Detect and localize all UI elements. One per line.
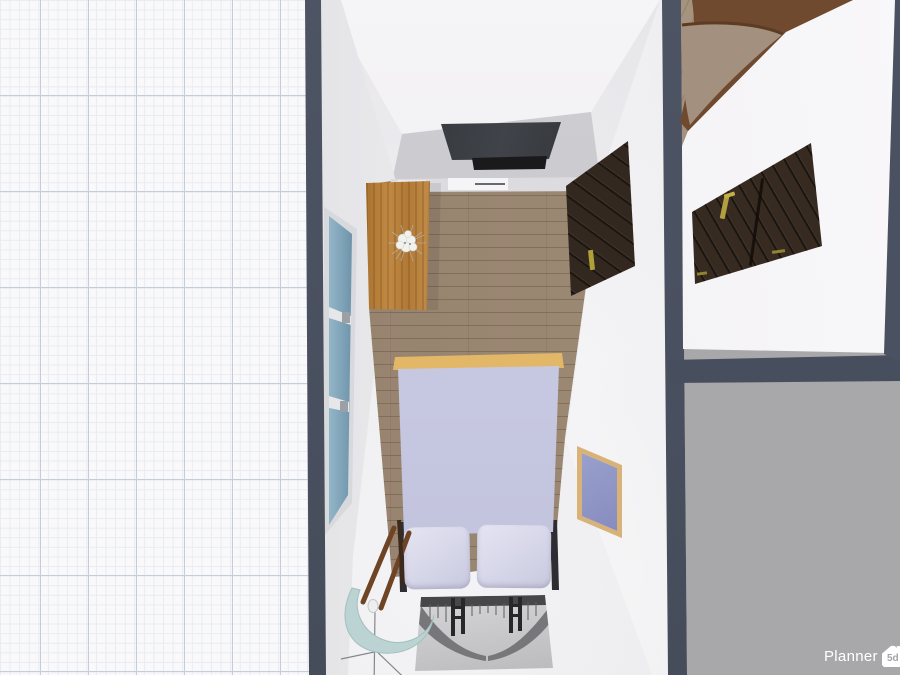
logo-text: 5d: [887, 654, 899, 664]
brand-text: Planner: [824, 648, 878, 665]
watermark: Planner 5d: [824, 645, 900, 667]
logo-house-icon: 5d: [882, 645, 900, 667]
planner5d-3d-viewport[interactable]: Planner 5d: [0, 0, 900, 675]
